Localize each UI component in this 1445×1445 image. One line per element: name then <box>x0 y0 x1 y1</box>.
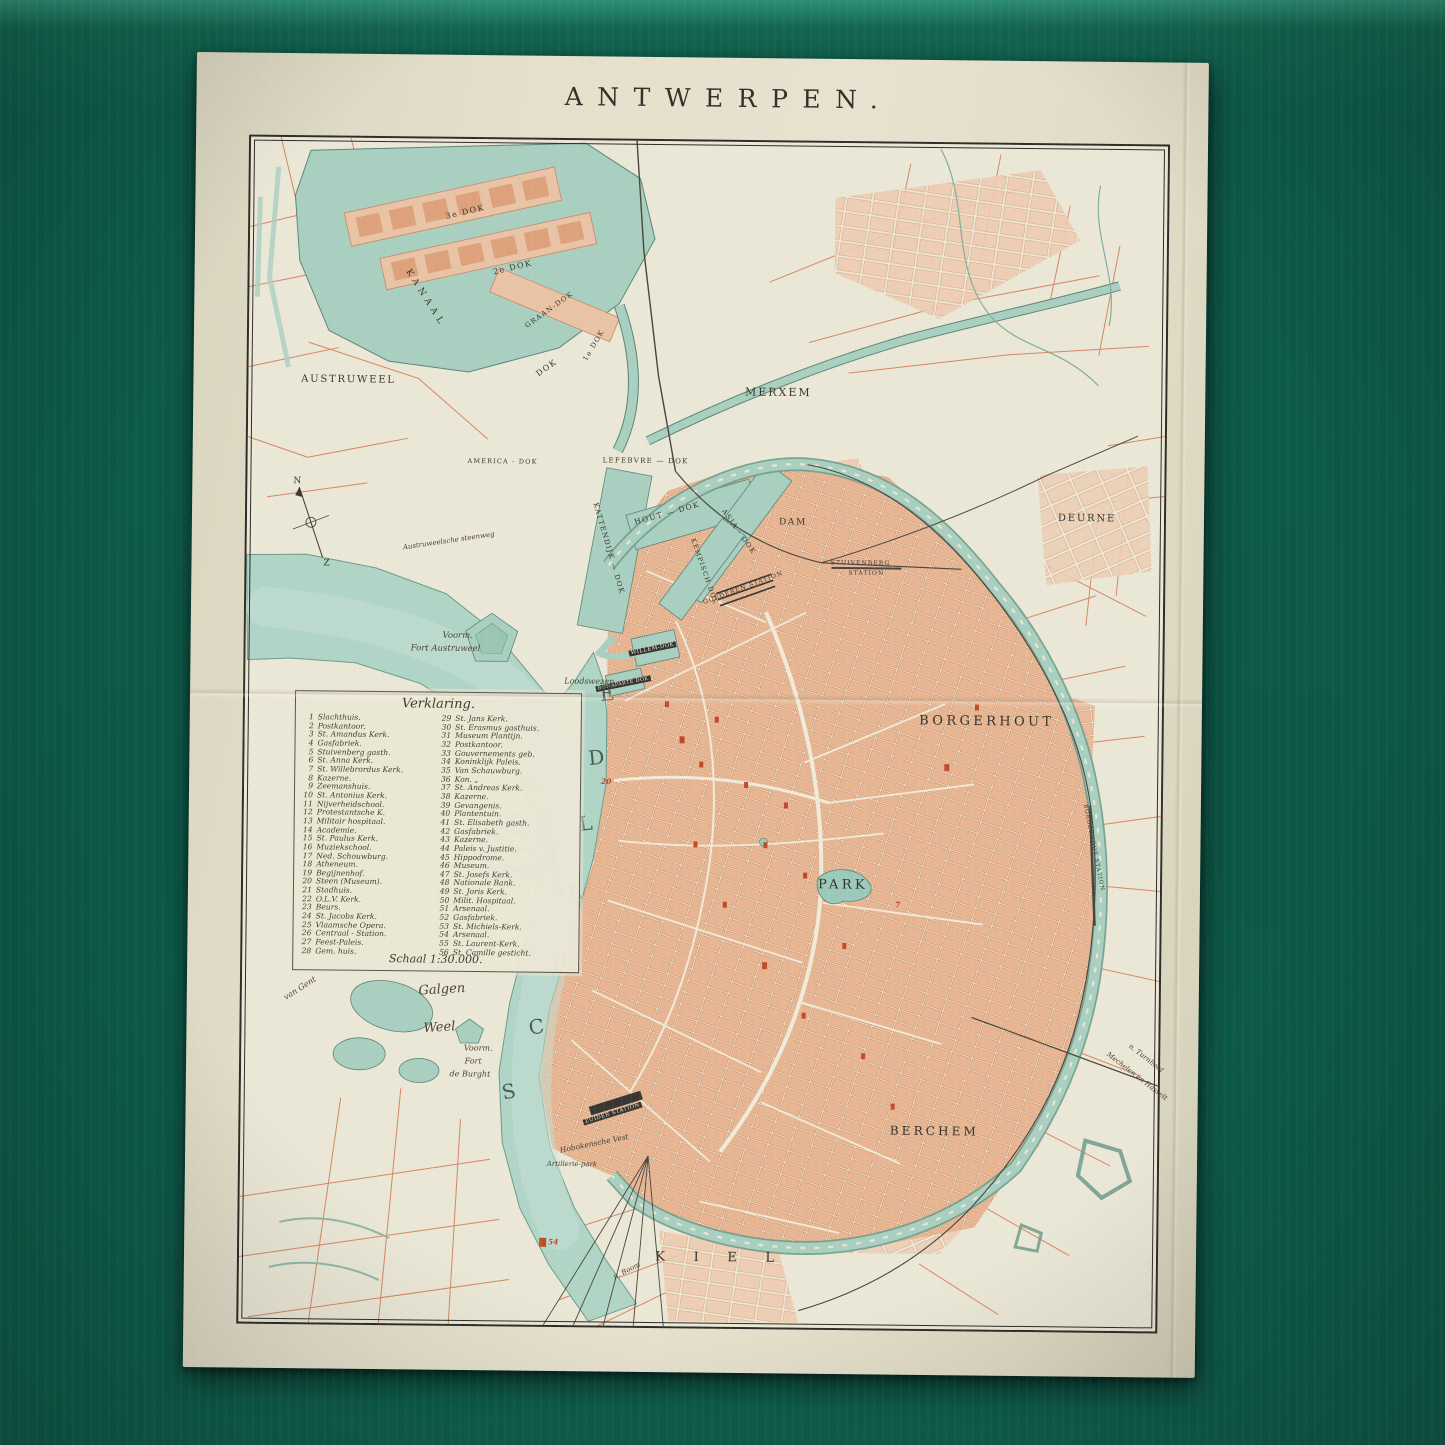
map-label-van-gent: van Gent <box>282 975 318 1002</box>
legend-column-2: 29St. Jans Kerk. 30St. Erasmus gasthuis.… <box>437 715 577 959</box>
map-label-hout-dok: HOUT — DOK <box>633 500 701 527</box>
map-label-dok2: 2e DOK <box>492 258 533 276</box>
map-label-voorm-burght-1: Voorm. <box>464 1043 493 1052</box>
map-label-willem-dok: WILLEM-DOK <box>628 641 676 656</box>
map-paper: ANTWERPEN. <box>183 52 1209 1378</box>
map-label-lefebvre-dok: LEFEBVRE — DOK <box>603 456 689 465</box>
map-label-voorm-fort-austruweel-1: Voorm. <box>442 631 473 641</box>
map-label-hobokensche-vest: Hobokensche Vest <box>559 1132 629 1155</box>
photo-background: ANTWERPEN. <box>0 0 1445 1445</box>
map-label-borgerhout-station: BORGERHOUT STATION <box>1082 804 1105 892</box>
map-marker-7: 7 <box>895 900 900 909</box>
map-label-voorm-burght-3: de Burght <box>450 1069 491 1078</box>
fold-crease-vertical <box>1169 63 1191 1378</box>
map-label-mechelen-en-hasselt: Mechelen en Hasselt <box>1105 1050 1169 1102</box>
map-label-galgen: Galgen <box>418 981 465 999</box>
map-label-graandok: GRAAN-DOK <box>524 290 575 330</box>
map-label-kiel: KIEL <box>655 1250 803 1267</box>
map-label-stuivenberg-station: STATION <box>848 570 884 577</box>
map-label-artillerie-park: Artillerie-park <box>547 1160 598 1169</box>
map-frame: 3e DOK 2e DOK GRAAN-DOK KANAAL DOK 1e DO… <box>236 135 1170 1334</box>
map-title: ANTWERPEN. <box>222 78 1234 118</box>
map-label-austruweelsche-steenweg: Austruweelsche steenweg <box>402 530 495 551</box>
map-label-dok3: 3e DOK <box>445 203 486 221</box>
map-label-kattendijk-dok: KATTENDIJK — DOK <box>591 502 625 595</box>
map-label-schelde-s: S <box>500 1078 518 1104</box>
map-marker-20: 20 <box>601 777 612 786</box>
map-label-n-boom: n. Boom <box>612 1260 642 1281</box>
map-label-weel: Weel <box>423 1019 456 1036</box>
map-label-compass-n: N <box>293 476 301 486</box>
map-label-berchem: BERCHEM <box>890 1124 979 1139</box>
map-label-loodswezen: Loodswezen <box>564 677 614 687</box>
map-label-deurne: DEURNE <box>1058 513 1116 525</box>
scale-label: Schaal 1:30.000. <box>293 951 578 967</box>
map-label-zuider-station: ZUIDER STATION <box>582 1102 642 1126</box>
map-label-borgerhout: BORGERHOUT <box>919 713 1054 729</box>
map-label-park: PARK <box>818 877 868 893</box>
map-label-schelde-d: D <box>587 745 605 770</box>
map-label-voorm-fort-austruweel-2: Fort Austruweel <box>411 643 481 654</box>
map-label-asia-dok: ASIA - DOK <box>720 508 758 556</box>
map-label-america-dok: AMERICA - DOK <box>467 457 537 466</box>
map-marker-54: 54 <box>548 1237 559 1246</box>
map-label-schelde-c: C <box>527 1014 546 1040</box>
map-label-dok: DOK <box>535 357 559 378</box>
map-label-dam: DAM <box>779 517 807 527</box>
map-label-merxem: MERXEM <box>745 385 812 399</box>
legend-column-1: 1Slachthuis. 2Postkantoor. 3St. Amandus … <box>299 713 439 957</box>
legend-columns: 1Slachthuis. 2Postkantoor. 3St. Amandus … <box>293 710 581 958</box>
map-label-voorm-burght-2: Fort <box>465 1056 482 1065</box>
map-label-dok1: 1e DOK <box>582 328 607 362</box>
map-label-kanaal: KANAAL <box>403 268 447 330</box>
map-label-compass-z: Z <box>323 558 329 568</box>
legend-box: Verklaring. 1Slachthuis. 2Postkantoor. 3… <box>292 690 582 973</box>
map-label-austruweel: AUSTRUWEEL <box>301 374 396 386</box>
map-label-stuivenberg: STUIVENBERG <box>831 559 891 567</box>
